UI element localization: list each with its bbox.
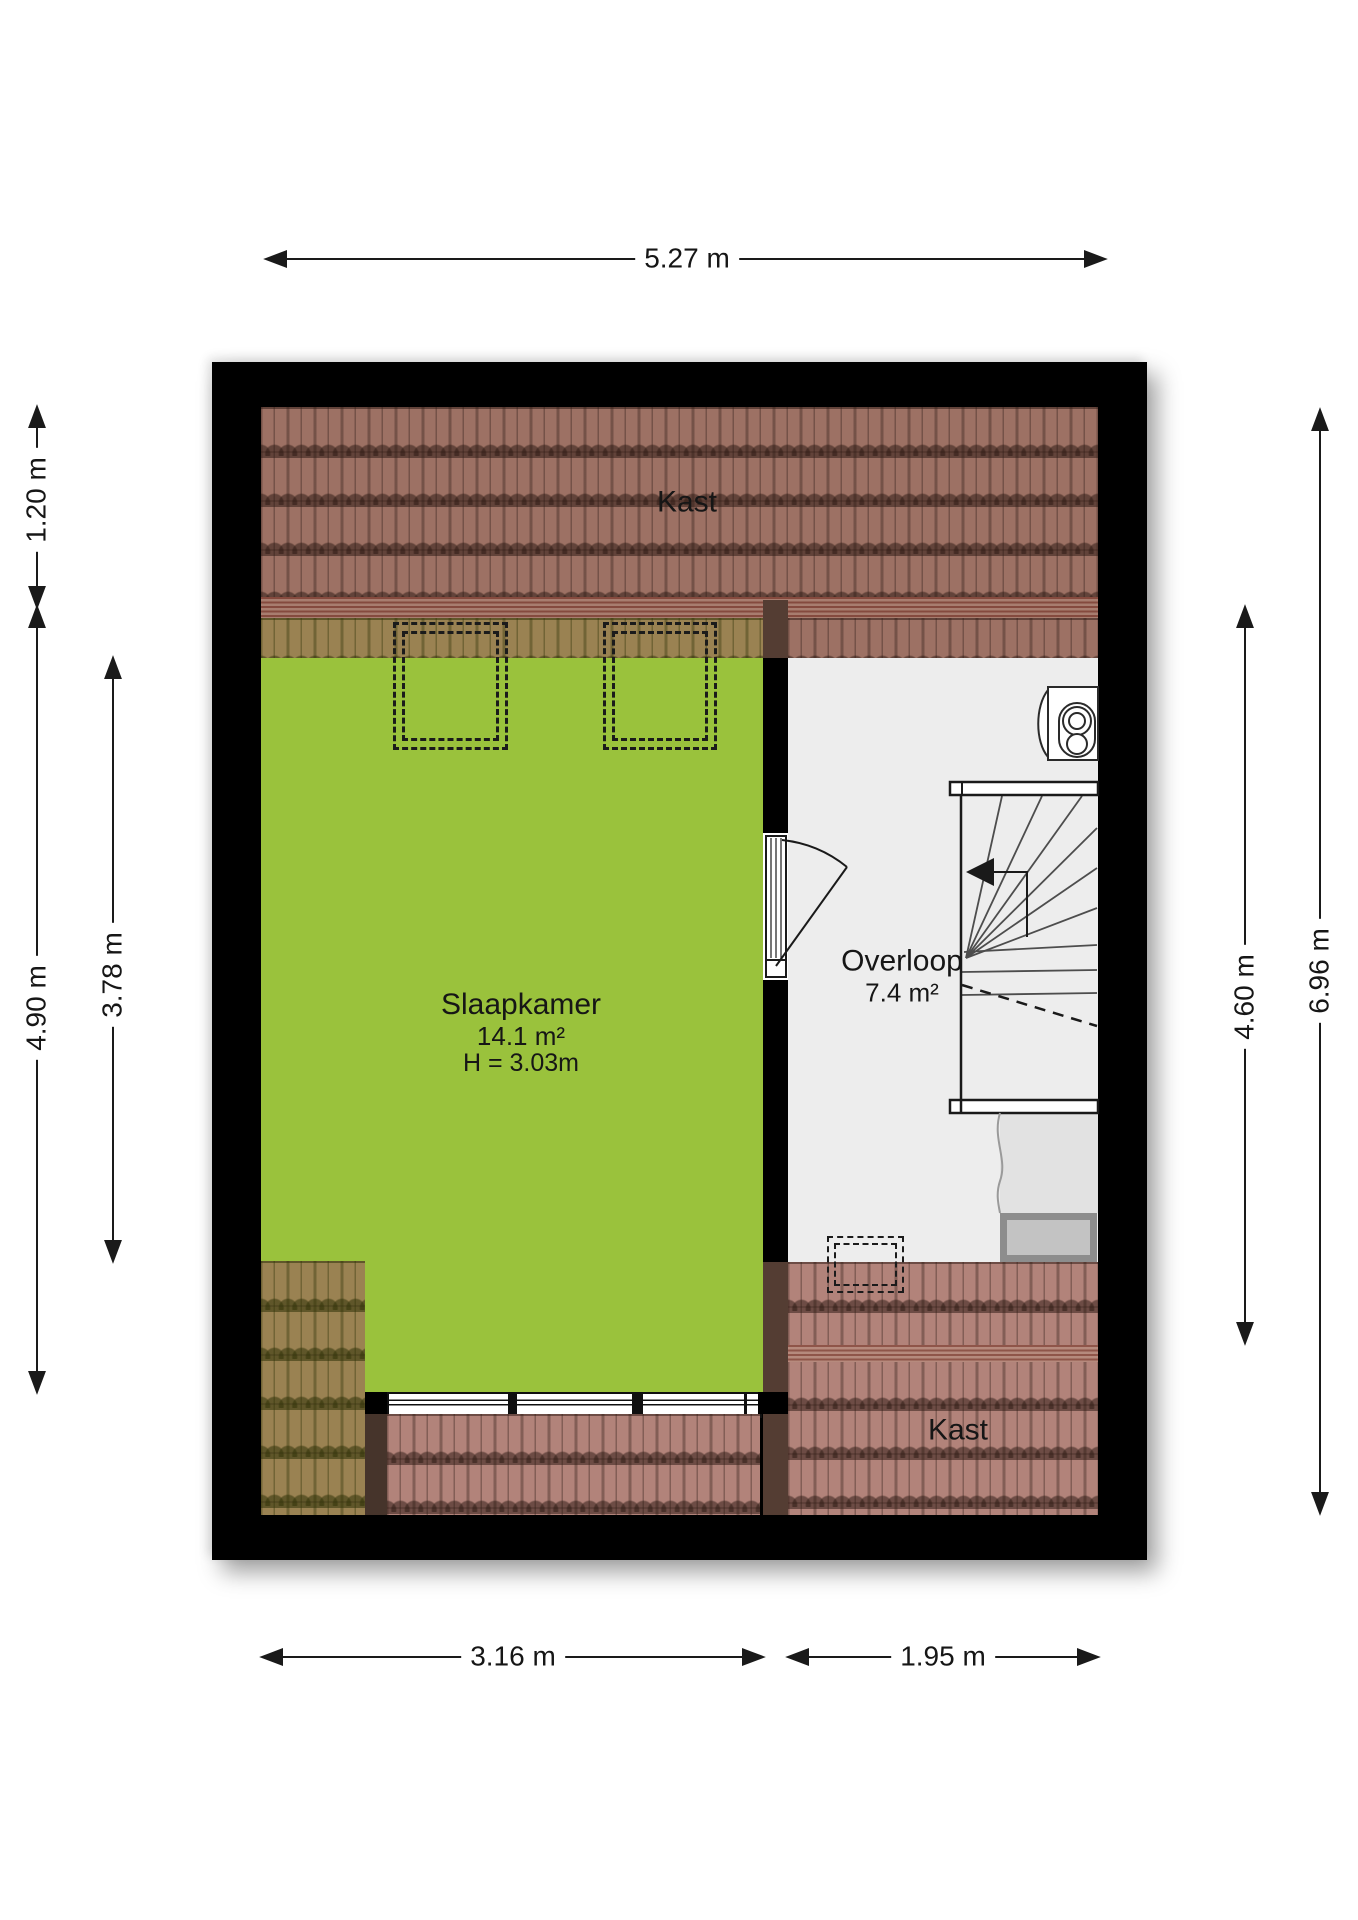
door-opening (763, 833, 788, 980)
roof-patch-bottom-left (261, 1261, 365, 1515)
divider-wall-upper (763, 658, 788, 833)
divider-wall-under-roof (763, 1262, 788, 1515)
room-ceiling-height: H = 3.03m (441, 1051, 601, 1076)
room-area: 14.1 m² (441, 1023, 601, 1049)
window-mullion (632, 1392, 643, 1414)
window-mullion (508, 1392, 517, 1414)
skylight-dashed-outline (603, 622, 717, 750)
room-label-slaapkamer: Slaapkamer 14.1 m² H = 3.03m (441, 990, 601, 1076)
room-name: Slaapkamer (441, 990, 601, 1020)
roof-over-landing (788, 618, 1098, 658)
dimension-label-left-upper: 1.20 m (21, 448, 54, 552)
dimension-label-right-inner: 4.60 m (1229, 945, 1262, 1049)
dimension-label-left-inner: 3.78 m (97, 923, 130, 1027)
skylight-dashed-inner (402, 631, 499, 741)
roof-area-bottom (788, 1262, 1098, 1515)
window-jamb-right (758, 1392, 788, 1414)
skylight-dashed-outline (393, 622, 508, 750)
roof-below-window (387, 1414, 760, 1515)
dimension-label-bottom-right: 1.95 m (891, 1641, 995, 1674)
roof-ridge-top (261, 597, 1098, 618)
window-mullion (744, 1392, 747, 1414)
room-label-kast-top: Kast (657, 486, 717, 519)
floorplan-page: 5.27 m 1.20 m 4.90 m 3.78 m 4.60 m 6.96 … (0, 0, 1358, 1920)
dimension-label-right-outer: 6.96 m (1304, 919, 1337, 1023)
wall-under-roof-top (763, 600, 788, 658)
room-name: Overloop (841, 947, 963, 977)
room-area: 7.4 m² (841, 980, 963, 1006)
roof-ridge-bottom (788, 1345, 1098, 1362)
dimension-label-left-lower: 4.90 m (21, 956, 54, 1060)
dimension-label-top: 5.27 m (635, 243, 739, 276)
divider-wall-lower (763, 980, 788, 1262)
dimension-label-bottom-left: 3.16 m (461, 1641, 565, 1674)
skylight-dashed-inner (834, 1243, 897, 1286)
room-label-kast-bottom: Kast (928, 1414, 988, 1447)
window-jamb-left (365, 1392, 387, 1414)
landing-floor-lower (1000, 1113, 1098, 1213)
room-label-overloop: Overloop 7.4 m² (841, 947, 963, 1006)
roof-hatch-below (1000, 1213, 1097, 1262)
skylight-dashed-inner (612, 631, 708, 741)
skylight-dashed-outline (827, 1236, 904, 1293)
